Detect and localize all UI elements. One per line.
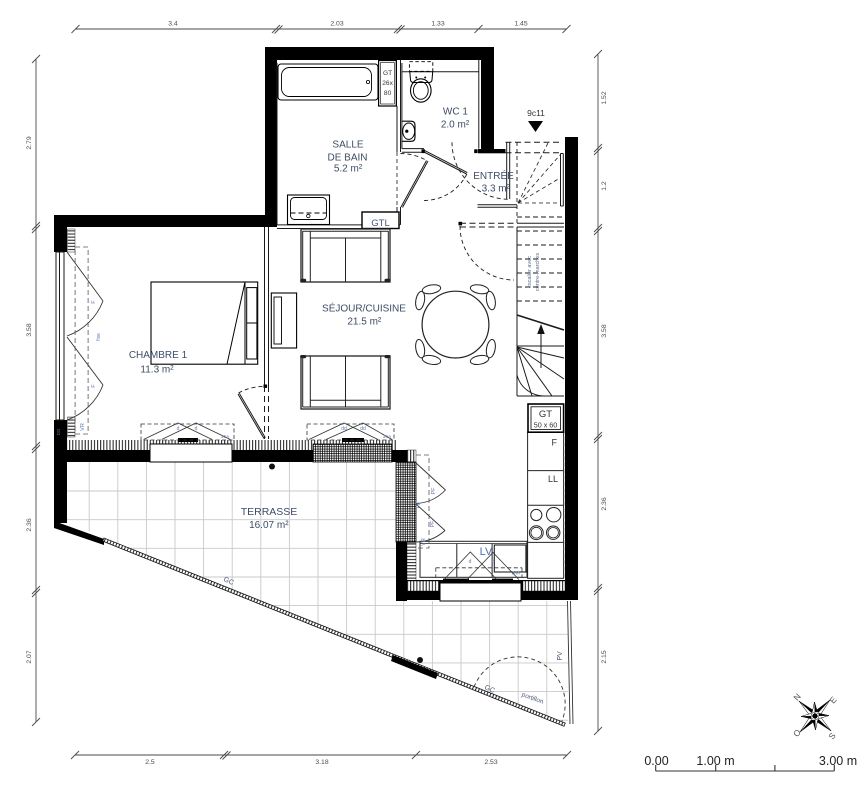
svg-text:3.58: 3.58 — [26, 323, 33, 336]
svg-text:9c11: 9c11 — [527, 108, 545, 118]
svg-text:2.03: 2.03 — [330, 21, 343, 28]
svg-text:escalier avec: escalier avec — [527, 256, 533, 288]
svg-text:2.0 m²: 2.0 m² — [441, 119, 470, 130]
svg-text:d: d — [195, 426, 198, 432]
svg-text:1.33: 1.33 — [431, 21, 444, 28]
svg-text:2.36: 2.36 — [26, 518, 33, 531]
svg-text:CHAMBRE 1: CHAMBRE 1 — [129, 350, 188, 361]
svg-text:2.07: 2.07 — [26, 650, 33, 663]
svg-text:GT: GT — [383, 70, 392, 77]
svg-text:PV: PV — [557, 651, 564, 661]
svg-text:GTL: GTL — [371, 218, 389, 229]
svg-text:PF: PF — [431, 487, 437, 495]
svg-text:2.53: 2.53 — [484, 759, 497, 766]
svg-text:LL: LL — [548, 474, 558, 484]
svg-text:ENTRÉE: ENTRÉE — [473, 169, 514, 182]
svg-text:11.3 m²: 11.3 m² — [140, 365, 174, 376]
svg-text:1.2: 1.2 — [601, 181, 608, 191]
svg-text:dd: dd — [360, 426, 366, 432]
svg-text:d: d — [177, 426, 180, 432]
svg-text:1.45: 1.45 — [514, 21, 527, 28]
svg-text:F: F — [552, 438, 558, 448]
svg-text:DG: DG — [56, 428, 61, 435]
svg-text:2.36: 2.36 — [601, 497, 608, 510]
svg-text:3.18: 3.18 — [315, 759, 328, 766]
svg-text:GT: GT — [539, 409, 552, 420]
svg-text:50 x 60: 50 x 60 — [534, 421, 558, 430]
svg-text:2.5: 2.5 — [145, 759, 155, 766]
svg-text:contre-marches: contre-marches — [535, 253, 541, 291]
svg-text:3.3 m²: 3.3 m² — [482, 184, 511, 195]
svg-text:SALLE: SALLE — [332, 140, 363, 151]
svg-text:VR: VR — [421, 538, 427, 546]
svg-text:TERRASSE: TERRASSE — [241, 506, 298, 518]
svg-text:80: 80 — [384, 90, 392, 97]
svg-text:2.15: 2.15 — [601, 650, 608, 663]
svg-text:3.00 m: 3.00 m — [819, 754, 857, 768]
svg-text:dd: dd — [341, 426, 347, 432]
svg-text:LV: LV — [480, 546, 493, 558]
svg-text:WC 1: WC 1 — [443, 106, 468, 117]
svg-text:d: d — [492, 559, 495, 565]
svg-text:34A: 34A — [512, 571, 521, 577]
svg-text:36A: 36A — [383, 434, 392, 440]
svg-text:3.4: 3.4 — [168, 21, 178, 28]
svg-text:1.52: 1.52 — [601, 91, 608, 104]
svg-text:2.79: 2.79 — [26, 136, 33, 149]
svg-text:DE BAIN: DE BAIN — [327, 152, 367, 163]
svg-text:fixe: fixe — [96, 333, 102, 341]
svg-text:3.58: 3.58 — [601, 324, 608, 337]
svg-text:VR: VR — [80, 423, 86, 431]
svg-text:0.00: 0.00 — [644, 754, 668, 768]
svg-text:26x: 26x — [382, 80, 393, 87]
svg-text:1.00 m: 1.00 m — [696, 754, 734, 768]
svg-text:16.07 m²: 16.07 m² — [249, 520, 289, 531]
svg-text:PF: PF — [430, 520, 436, 528]
svg-text:PF: PF — [416, 502, 422, 508]
svg-text:d: d — [469, 559, 472, 565]
svg-text:SÉJOUR/CUISINE: SÉJOUR/CUISINE — [322, 302, 406, 315]
svg-text:21.5 m²: 21.5 m² — [347, 317, 382, 328]
svg-text:5.2 m²: 5.2 m² — [334, 164, 363, 175]
svg-text:36A: 36A — [221, 434, 230, 440]
